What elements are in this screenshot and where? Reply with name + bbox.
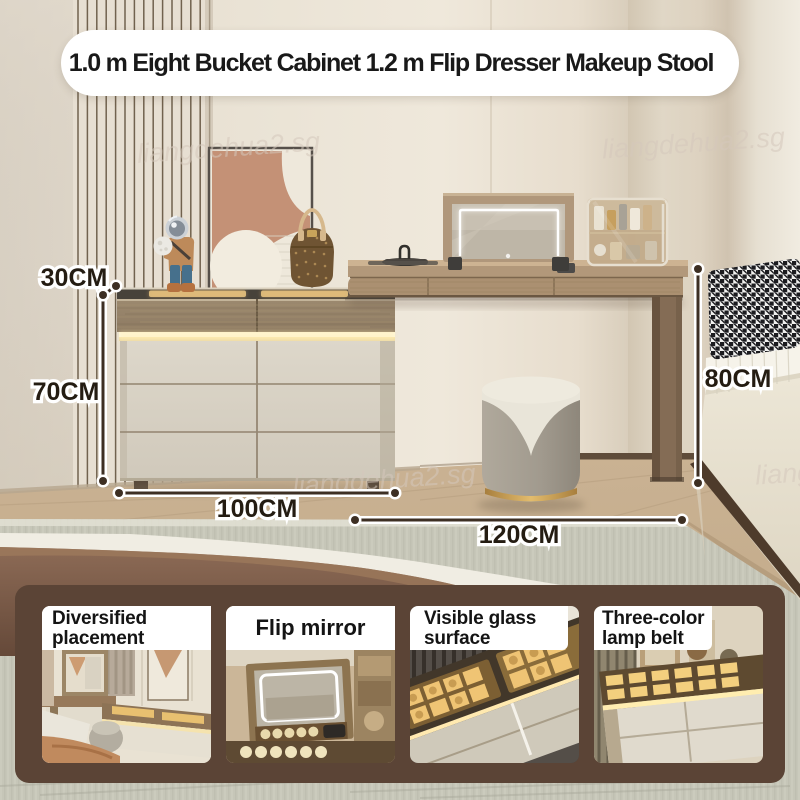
svg-text:30CM: 30CM bbox=[41, 264, 108, 292]
svg-text:100CM: 100CM bbox=[217, 495, 298, 523]
svg-text:70CM: 70CM bbox=[33, 378, 100, 406]
svg-text:80CM: 80CM bbox=[705, 365, 772, 393]
svg-text:120CM: 120CM bbox=[479, 521, 560, 549]
